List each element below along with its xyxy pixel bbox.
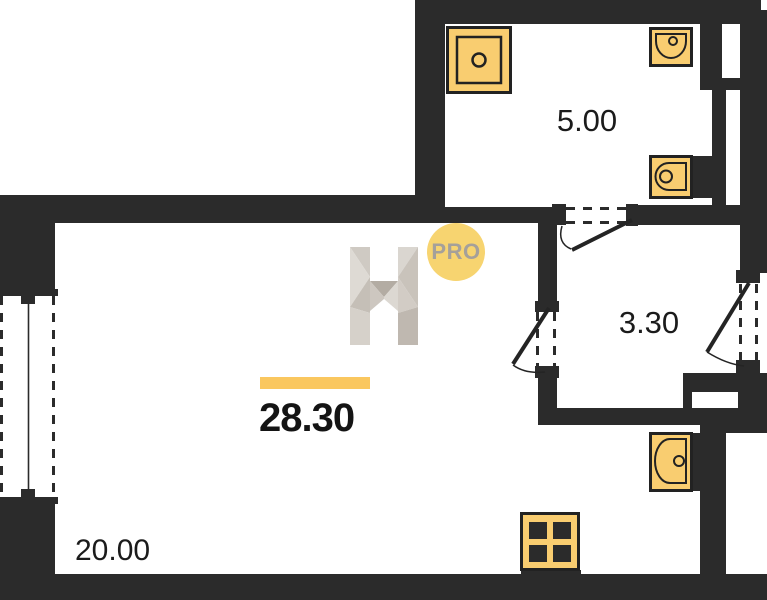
bathroom-door-dash-bottom <box>566 221 626 224</box>
total-area-label: 28.30 <box>259 396 354 441</box>
entrance-door-dash-left <box>739 284 742 360</box>
toilet-tank <box>690 156 712 198</box>
stove-pedestal <box>521 570 581 580</box>
bathroom-door-post-right <box>626 204 638 226</box>
bathroom-door-leaf <box>572 220 632 250</box>
entrance-door-dash-right <box>755 284 758 360</box>
hallway-door-dash-right <box>553 312 556 366</box>
shower-icon <box>446 26 512 94</box>
bathroom-sink-icon <box>649 27 693 67</box>
wall-bathroom-right <box>712 88 726 210</box>
stove-icon <box>520 512 580 571</box>
watermark-pro-badge: PRO <box>427 223 485 281</box>
room-label-living: 20.00 <box>75 534 165 568</box>
window-sill-bottom <box>0 497 58 504</box>
window-dash-inner <box>52 296 55 497</box>
window-sill-top <box>0 289 58 296</box>
entrance-door-leaf <box>707 283 749 352</box>
kitchen-sink-icon <box>649 432 693 492</box>
wall-hallway-bottom <box>538 408 726 425</box>
wall-corner-mass <box>726 408 767 433</box>
room-label-hallway: 3.30 <box>612 305 686 341</box>
hallway-door-post-top <box>535 301 559 312</box>
corner-notch <box>761 0 767 10</box>
wall-shaft-stub <box>700 24 722 80</box>
hallway-door-post-bottom <box>535 366 559 378</box>
wall-main-top <box>0 195 445 223</box>
wall-kitchen-right <box>700 420 726 578</box>
watermark-h-logo <box>350 247 418 345</box>
toilet-icon <box>649 155 693 199</box>
wall-right-upper <box>740 0 767 273</box>
room-label-bathroom: 5.00 <box>550 103 624 139</box>
bathroom-door-arc <box>561 226 571 249</box>
entrance-door-post-top <box>736 270 760 283</box>
floor-plan-canvas: PRO <box>0 0 767 600</box>
bathroom-door-post-left <box>552 204 566 225</box>
pro-badge-text: PRO <box>431 239 480 265</box>
total-area-highlight-bar <box>260 377 370 389</box>
hallway-door-leaf <box>513 308 549 364</box>
window-opening <box>0 296 55 497</box>
wall-niche-top <box>683 373 767 392</box>
hallway-door-dash-left <box>536 312 539 366</box>
entrance-door-post-bottom <box>736 360 760 374</box>
wall-bottom <box>0 574 767 600</box>
wall-bathroom-left <box>415 0 445 223</box>
bathroom-door-dash-top <box>566 207 626 210</box>
window-dash-outer <box>0 296 3 497</box>
wall-top-bathroom <box>415 0 767 24</box>
